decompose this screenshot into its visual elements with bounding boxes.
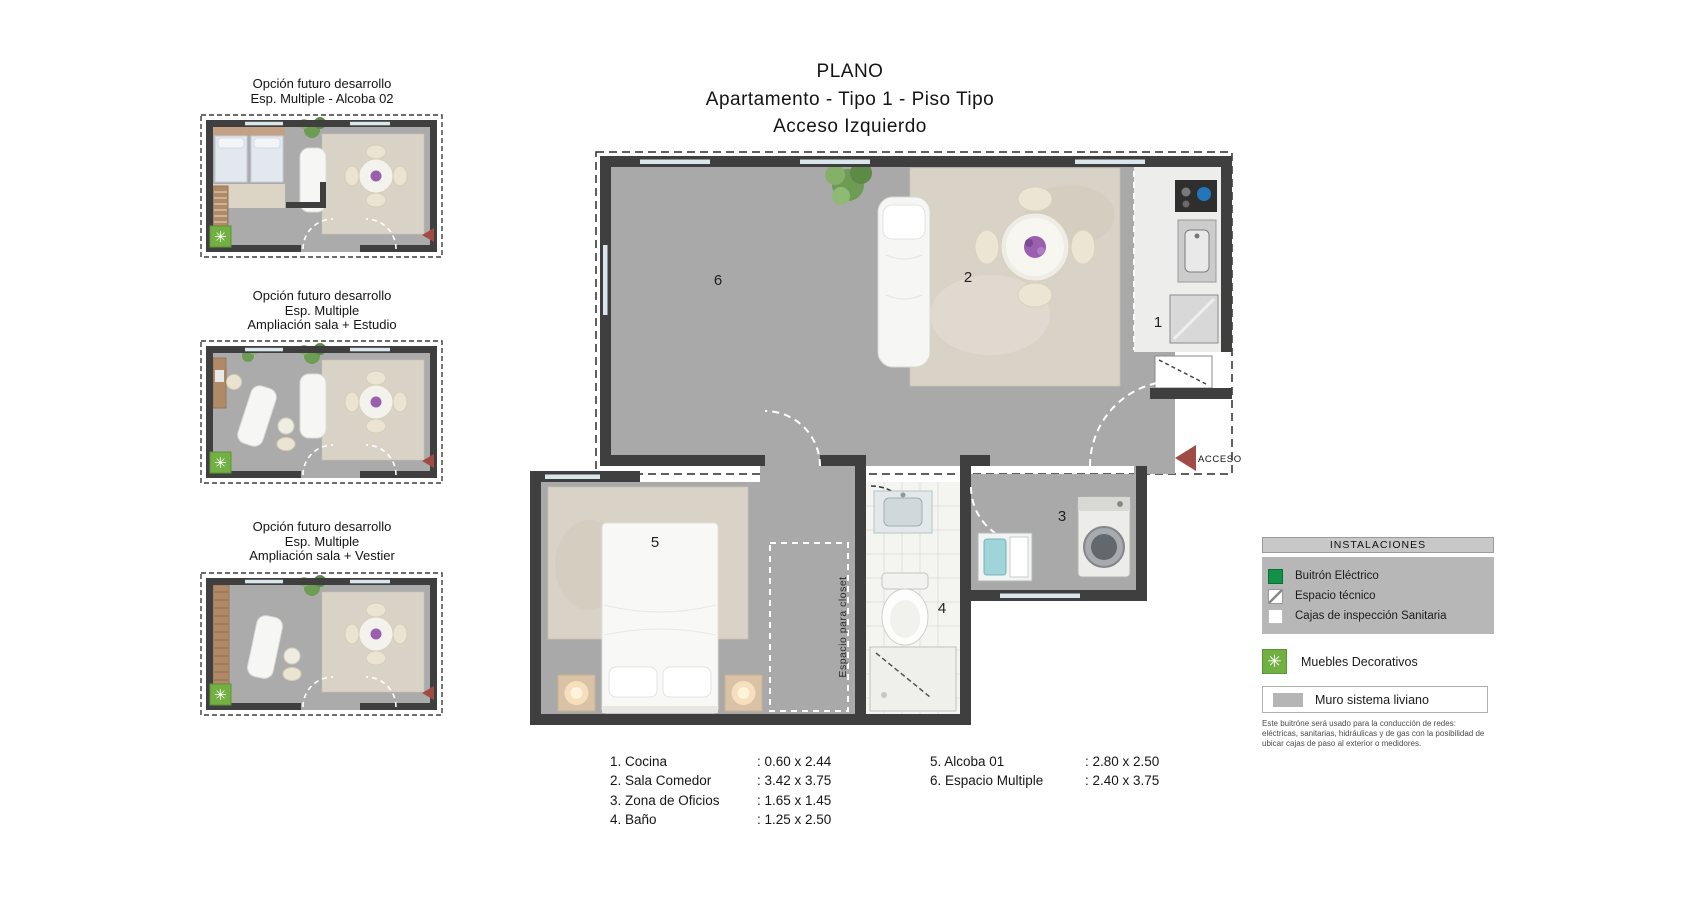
room-list-col1: 1. Cocina: 0.60 x 2.44 2. Sala Comedor: …	[610, 752, 831, 829]
svg-text:✳: ✳	[214, 229, 227, 246]
shower-icon	[870, 647, 956, 711]
room-list-item: 2. Sala Comedor: 3.42 x 3.75	[610, 771, 831, 790]
legend-item-label: Buitrón Eléctrico	[1295, 570, 1379, 582]
decorative-asterisk-icon: ✳	[210, 684, 231, 705]
caption-line: Ampliación sala + Vestier	[172, 549, 472, 564]
option-3-plan-vestier: ✳	[200, 572, 443, 716]
muro-swatch-icon	[1273, 693, 1303, 707]
espacio-tecnico-box	[1155, 356, 1212, 388]
room-list-item: 4. Baño: 1.25 x 2.50	[610, 810, 831, 829]
cajas-inspeccion-swatch-icon	[1268, 609, 1283, 624]
bedroom	[548, 487, 762, 713]
room-list-col2: 5. Alcoba 01: 2.80 x 2.50 6. Espacio Mul…	[930, 752, 1159, 791]
legend-item-label: Cajas de inspección Sanitaria	[1295, 610, 1447, 622]
legend-panel: Buitrón Eléctrico Espacio técnico Cajas …	[1262, 557, 1494, 634]
access-arrow-icon	[1175, 445, 1196, 471]
caption-line: Opción futuro desarrollo	[172, 77, 472, 92]
living-rug	[910, 168, 1120, 386]
legend-item-label: Espacio técnico	[1295, 590, 1376, 602]
legend-muro-sistema: Muro sistema liviano	[1262, 686, 1488, 713]
buitron-electrico-swatch-icon	[1268, 569, 1283, 584]
room-list-item: 6. Espacio Multiple: 2.40 x 3.75	[930, 771, 1159, 790]
muro-label: Muro sistema liviano	[1315, 693, 1429, 707]
caption-line: Opción futuro desarrollo	[172, 520, 472, 535]
room-label-6: 6	[714, 272, 722, 289]
option-1-plan-alcoba02: ✳	[200, 114, 443, 258]
closet-label: Espacio para closet	[837, 576, 849, 677]
room-label-1: 1	[1154, 314, 1162, 331]
espacio-tecnico-swatch-icon	[1268, 589, 1283, 604]
wardrobe-vestier	[213, 585, 229, 689]
room-list-item: 1. Cocina: 0.60 x 2.44	[610, 752, 831, 771]
page-title: PLANO Apartamento - Tipo 1 - Piso Tipo A…	[520, 58, 1180, 141]
option-1-caption: Opción futuro desarrollo Esp. Multiple -…	[172, 77, 472, 106]
room-label-4: 4	[938, 600, 946, 617]
option-2-plan-estudio: ✳	[200, 340, 443, 484]
muebles-label: Muebles Decorativos	[1301, 655, 1418, 669]
legend-header: INSTALACIONES	[1262, 537, 1494, 553]
caption-line: Ampliación sala + Estudio	[172, 318, 472, 333]
option-2-caption: Opción futuro desarrollo Esp. Multiple A…	[172, 289, 472, 333]
caption-line: Esp. Multiple	[172, 535, 472, 550]
asterisk-icon: ✳	[1262, 649, 1287, 674]
legend-muebles-decorativos: ✳ Muebles Decorativos	[1262, 649, 1494, 674]
access-label: ACCESO	[1198, 454, 1242, 465]
room-list-item: 3. Zona de Oficios: 1.65 x 1.45	[610, 791, 831, 810]
legend-item: Cajas de inspección Sanitaria	[1262, 606, 1494, 626]
svg-text:✳: ✳	[214, 687, 227, 704]
room-list-item: 5. Alcoba 01: 2.80 x 2.50	[930, 752, 1159, 771]
legend-item: Buitrón Eléctrico	[1262, 566, 1494, 586]
caption-line: Opción futuro desarrollo	[172, 289, 472, 304]
title-line-2: Apartamento - Tipo 1 - Piso Tipo	[520, 86, 1180, 114]
legend-item: Espacio técnico	[1262, 586, 1494, 606]
decorative-asterisk-icon: ✳	[210, 226, 231, 247]
legend-footnote: Este buitróne será usado para la conducc…	[1262, 719, 1490, 749]
main-floor-plan: ACCESO Espacio para closet	[530, 135, 1250, 747]
caption-line: Esp. Multiple	[172, 304, 472, 319]
toilet-icon	[882, 573, 928, 589]
room-label-3: 3	[1058, 508, 1066, 525]
room-label-2: 2	[964, 269, 972, 286]
title-line-1: PLANO	[520, 58, 1180, 86]
caption-line: Esp. Multiple - Alcoba 02	[172, 92, 472, 107]
svg-text:✳: ✳	[214, 455, 227, 472]
room-label-5: 5	[651, 534, 659, 551]
decorative-asterisk-icon: ✳	[210, 452, 231, 473]
legend-instalaciones: INSTALACIONES Buitrón Eléctrico Espacio …	[1262, 537, 1494, 749]
sofa	[300, 374, 326, 438]
option-3-caption: Opción futuro desarrollo Esp. Multiple A…	[172, 520, 472, 564]
sofa	[878, 197, 930, 367]
